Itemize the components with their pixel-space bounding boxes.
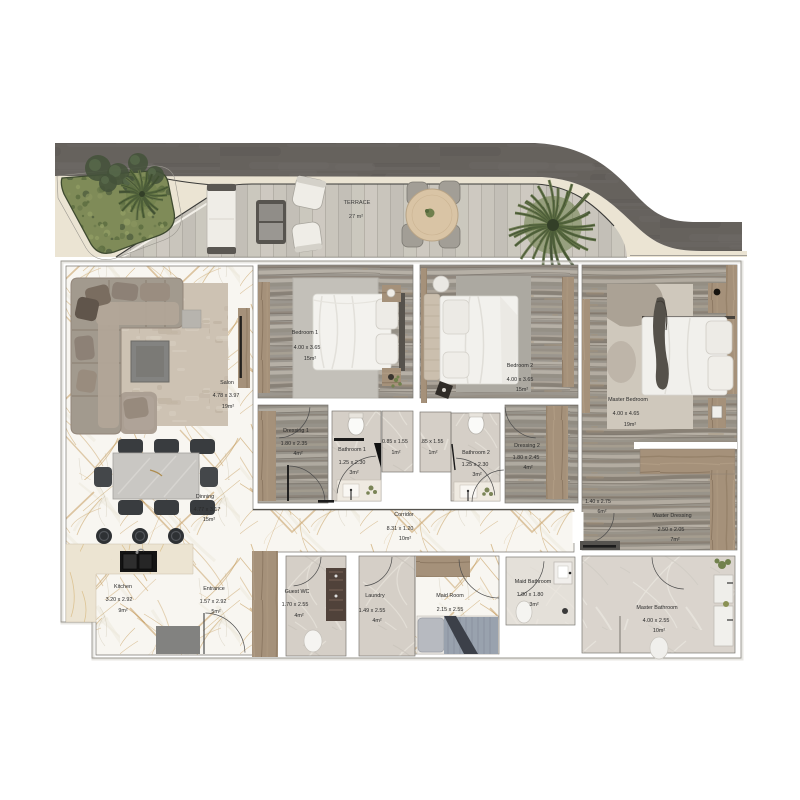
svg-text:TERRACE: TERRACE: [344, 200, 371, 206]
svg-text:3m²: 3m²: [472, 472, 481, 478]
svg-text:27 m²: 27 m²: [349, 214, 363, 220]
svg-text:4m²: 4m²: [523, 465, 532, 471]
svg-text:Bedroom 1: Bedroom 1: [292, 330, 318, 336]
svg-text:3.20 x 2.92: 3.20 x 2.92: [106, 597, 133, 603]
svg-text:19m²: 19m²: [624, 422, 636, 428]
svg-text:4.00 x 3.65: 4.00 x 3.65: [294, 345, 321, 351]
svg-text:4m²: 4m²: [293, 451, 302, 457]
svg-text:4.77 x 3.17: 4.77 x 3.17: [194, 507, 221, 513]
svg-text:5m²: 5m²: [211, 609, 220, 615]
svg-text:Dinning: Dinning: [196, 494, 214, 500]
svg-text:4m²: 4m²: [372, 618, 381, 624]
svg-text:1.80 x 1.80: 1.80 x 1.80: [517, 592, 544, 598]
svg-text:Bathroom 2: Bathroom 2: [462, 450, 490, 456]
svg-text:3m²: 3m²: [529, 602, 538, 608]
svg-text:Kitchen: Kitchen: [114, 584, 132, 590]
svg-text:19m²: 19m²: [222, 404, 234, 410]
svg-text:.85 x 1.55: .85 x 1.55: [421, 439, 444, 445]
svg-text:3m²: 3m²: [349, 470, 358, 476]
svg-text:0.85 x 1.55: 0.85 x 1.55: [382, 439, 408, 445]
svg-text:1.80 x 2.45: 1.80 x 2.45: [513, 455, 540, 461]
svg-text:1.80 x 2.35: 1.80 x 2.35: [281, 441, 308, 447]
svg-text:1.40 x 2.75: 1.40 x 2.75: [585, 499, 611, 505]
svg-text:1.70 x 2.55: 1.70 x 2.55: [282, 602, 309, 608]
svg-text:Master Bedroom: Master Bedroom: [608, 397, 648, 403]
svg-text:Master Dressing: Master Dressing: [652, 513, 691, 519]
svg-text:Dressing 1: Dressing 1: [283, 428, 309, 434]
svg-text:10m²: 10m²: [399, 536, 411, 542]
svg-text:8.31 x 1.20: 8.31 x 1.20: [387, 526, 414, 532]
svg-text:15m²: 15m²: [516, 387, 528, 393]
svg-text:1.57 x 2.92: 1.57 x 2.92: [200, 599, 227, 605]
svg-text:Dressing 2: Dressing 2: [514, 443, 540, 449]
svg-text:1.49 x 2.55: 1.49 x 2.55: [359, 608, 386, 614]
svg-text:7m²: 7m²: [670, 537, 679, 543]
svg-text:Bathroom 1: Bathroom 1: [338, 447, 366, 453]
svg-text:1.25 x 2.30: 1.25 x 2.30: [462, 462, 489, 468]
svg-text:Maid Bathroom: Maid Bathroom: [515, 579, 552, 585]
svg-text:Guest WC: Guest WC: [285, 589, 310, 595]
svg-text:Entrance: Entrance: [203, 586, 225, 592]
svg-text:15m²: 15m²: [203, 517, 215, 523]
svg-text:6m²: 6m²: [598, 509, 607, 515]
svg-text:Corridor: Corridor: [394, 512, 414, 518]
svg-text:2.15 x 2.55: 2.15 x 2.55: [437, 607, 464, 613]
svg-text:4.00 x 3.65: 4.00 x 3.65: [507, 377, 534, 383]
svg-text:Maid Room: Maid Room: [436, 593, 464, 599]
svg-text:4.00 x 4.65: 4.00 x 4.65: [613, 411, 640, 417]
svg-text:1.25 x 2.30: 1.25 x 2.30: [339, 460, 366, 466]
svg-text:4m²: 4m²: [294, 613, 303, 619]
svg-text:2.50 x 2.05: 2.50 x 2.05: [658, 527, 685, 533]
svg-text:9m²: 9m²: [118, 608, 127, 614]
svg-text:Bedroom 2: Bedroom 2: [507, 363, 533, 369]
svg-text:4.00 x 2.55: 4.00 x 2.55: [643, 618, 670, 624]
svg-text:1m²: 1m²: [392, 450, 401, 456]
svg-text:Salon: Salon: [220, 380, 234, 386]
svg-text:4.78 x 3.97: 4.78 x 3.97: [213, 393, 240, 399]
svg-text:15m²: 15m²: [304, 356, 316, 362]
svg-text:Laundry: Laundry: [365, 593, 385, 599]
svg-text:Master Bathroom: Master Bathroom: [636, 605, 678, 611]
svg-text:1m²: 1m²: [429, 450, 438, 456]
svg-text:10m²: 10m²: [653, 628, 665, 634]
